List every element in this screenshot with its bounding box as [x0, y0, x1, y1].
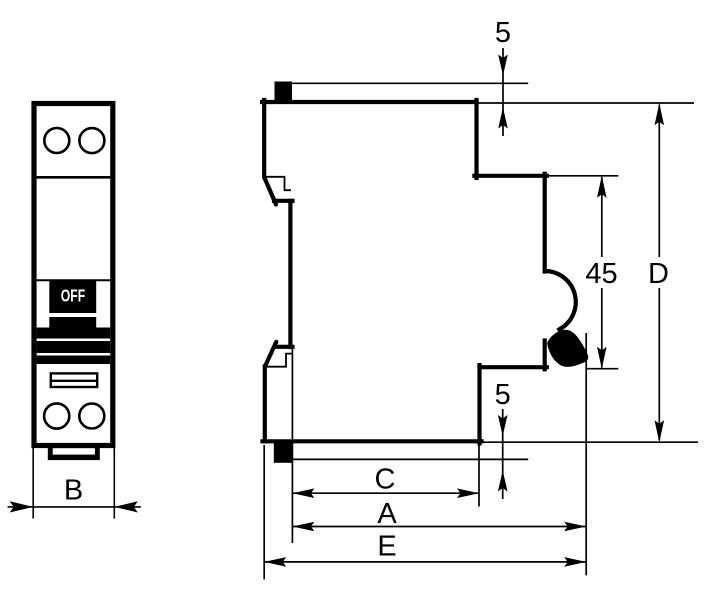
svg-text:OFF: OFF	[61, 286, 86, 306]
svg-text:5: 5	[495, 379, 511, 411]
svg-text:B: B	[64, 475, 83, 507]
svg-text:E: E	[377, 531, 396, 563]
svg-text:A: A	[377, 498, 397, 530]
svg-text:C: C	[375, 464, 396, 496]
svg-text:5: 5	[495, 17, 511, 49]
svg-text:45: 45	[585, 258, 617, 290]
svg-text:D: D	[648, 258, 669, 290]
